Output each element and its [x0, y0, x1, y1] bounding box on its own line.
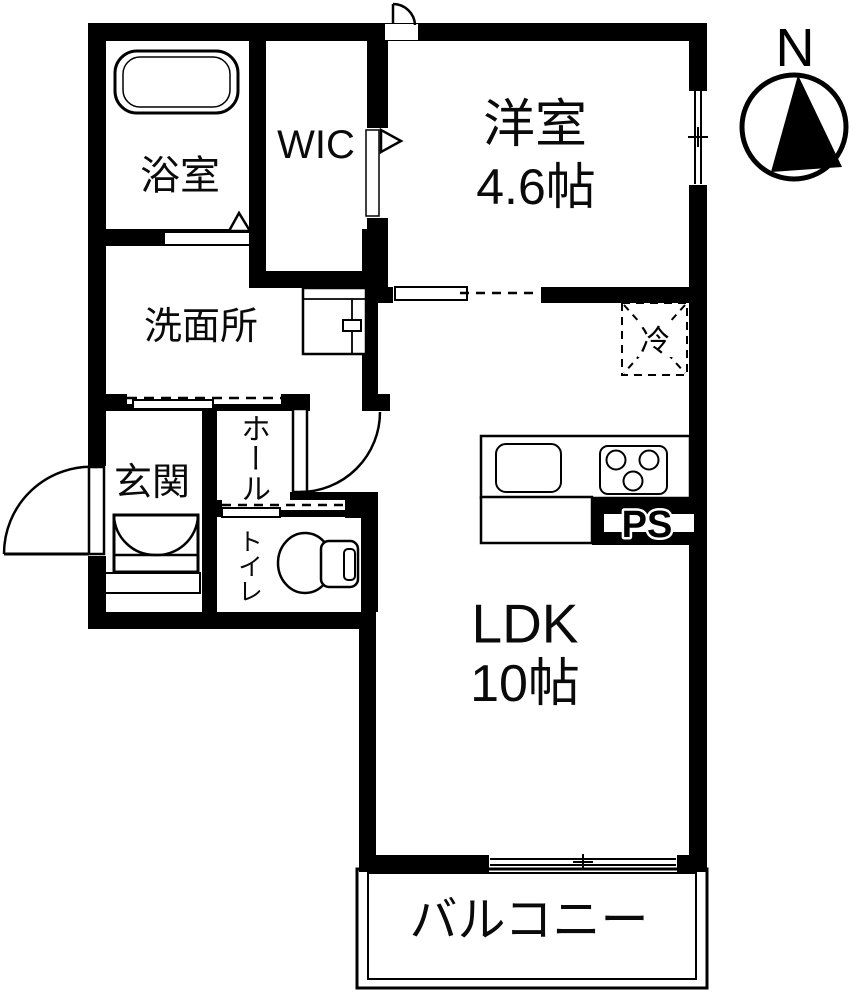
- label-balcony: バルコニー: [409, 897, 648, 945]
- label-bathroom: 浴室: [140, 156, 220, 196]
- refrigerator-label: 冷: [640, 325, 670, 358]
- label-western-room-name: 洋室: [483, 99, 587, 151]
- toilet-flush: [344, 549, 355, 580]
- label-entrance: 玄関: [114, 464, 190, 502]
- wall-bottom-left-block: [88, 612, 376, 629]
- hall-door-arc: [300, 412, 380, 492]
- western-slider-panel: [395, 287, 467, 300]
- pipe-space: PS: [592, 497, 694, 546]
- stove-burner-2: [640, 451, 659, 470]
- pipe-space-label: PS: [622, 504, 673, 546]
- floor-plan: PS 冷: [0, 0, 859, 1001]
- shoe-cabinet: [105, 515, 200, 593]
- bath-door-triangle: [229, 213, 250, 231]
- stove-burner-3: [624, 472, 643, 491]
- bathtub-inner: [123, 57, 230, 107]
- compass-north-label: N: [776, 18, 815, 78]
- bath-door-panel: [164, 232, 250, 245]
- wic-door-panel: [366, 130, 379, 216]
- label-hall: ホール: [237, 413, 267, 503]
- label-ldk-size: 10帖: [470, 658, 580, 710]
- washroom-slider-panel: [133, 400, 213, 409]
- washbasin: [303, 288, 366, 354]
- wall-toilet-right: [361, 492, 378, 612]
- label-wic: WIC: [277, 125, 355, 165]
- wall-entrance-hall-divider: [202, 408, 217, 612]
- stove-burner-1: [607, 451, 626, 470]
- bathtub: [115, 51, 238, 113]
- wall-ldk-left: [359, 612, 376, 872]
- label-washroom: 洗面所: [144, 308, 258, 346]
- shoe-cabinet-door-right-arc: [155, 516, 198, 555]
- compass: N: [742, 18, 846, 179]
- refrigerator-space: 冷: [622, 303, 687, 375]
- washbasin-tap: [343, 320, 361, 331]
- entry-door-leaf: [89, 467, 104, 554]
- hall-door-leaf: [293, 409, 307, 492]
- toilet-fixture: [278, 533, 358, 593]
- kitchen-counter-lower: [481, 497, 592, 543]
- shoe-cabinet-door-left-arc: [114, 516, 155, 555]
- label-western-room-size: 4.6帖: [476, 162, 596, 212]
- toilet-slider-panel: [222, 508, 280, 517]
- opening-top-door: [385, 24, 418, 40]
- entry-door-arc: [4, 467, 97, 554]
- kitchen-sink: [496, 444, 561, 492]
- entrance-step: [105, 573, 200, 593]
- wall-door-east-jamb: [362, 394, 390, 411]
- top-door-arc: [393, 4, 415, 25]
- label-toilet: トイレ: [236, 529, 261, 604]
- label-ldk-name: LDK: [472, 597, 579, 652]
